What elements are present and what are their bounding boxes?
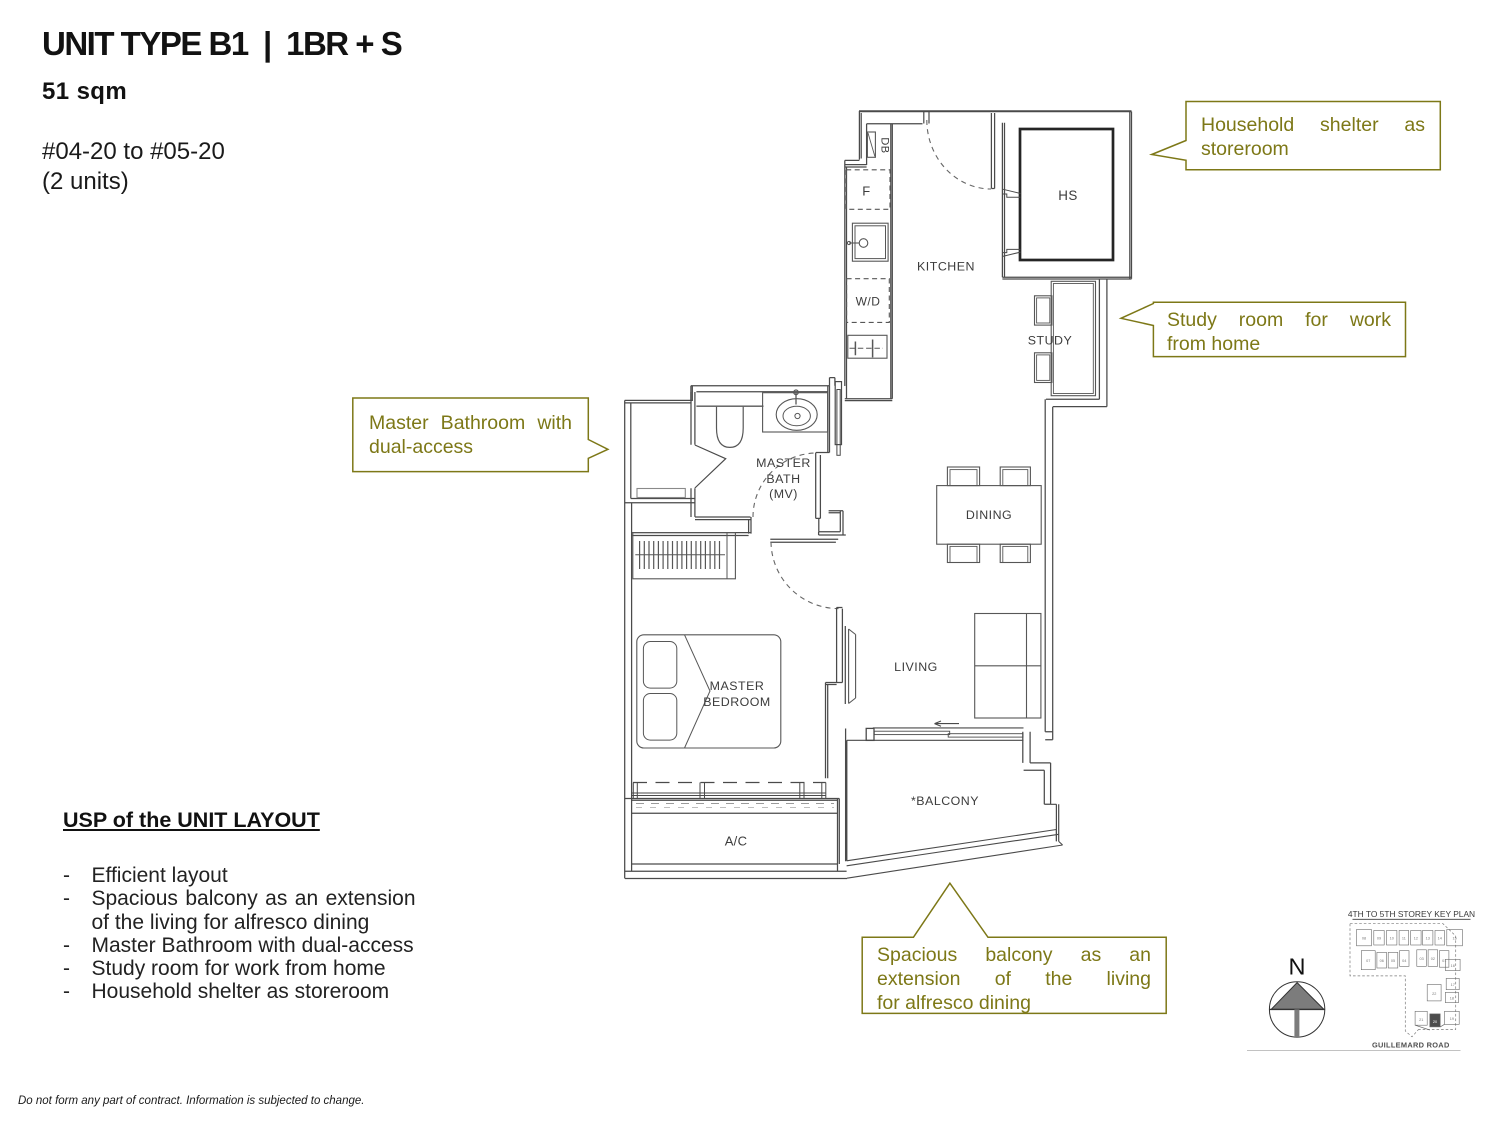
svg-text:04: 04	[1402, 959, 1406, 963]
svg-text:16: 16	[1451, 964, 1455, 968]
svg-text:LIVING: LIVING	[894, 660, 938, 674]
svg-text:06: 06	[1380, 959, 1384, 963]
svg-text:20: 20	[1433, 1020, 1437, 1024]
svg-text:MASTER: MASTER	[756, 456, 811, 470]
svg-text:14: 14	[1438, 937, 1442, 941]
svg-text:01: 01	[1442, 959, 1446, 963]
svg-text:N: N	[1289, 954, 1306, 980]
svg-text:A/C: A/C	[725, 834, 748, 849]
svg-text:21: 21	[1419, 1018, 1423, 1022]
svg-text:18: 18	[1450, 997, 1454, 1001]
svg-text:DINING: DINING	[966, 508, 1012, 522]
svg-text:09: 09	[1377, 937, 1381, 941]
svg-text:03: 03	[1419, 957, 1423, 961]
svg-text:4TH TO 5TH STOREY KEY PLAN: 4TH TO 5TH STOREY KEY PLAN	[1348, 909, 1475, 919]
svg-text:BEDROOM: BEDROOM	[703, 695, 771, 709]
svg-text:HS: HS	[1058, 188, 1078, 203]
svg-text:GUILLEMARD ROAD: GUILLEMARD ROAD	[1372, 1041, 1450, 1050]
svg-text:*BALCONY: *BALCONY	[911, 794, 979, 808]
svg-text:STUDY: STUDY	[1028, 334, 1073, 348]
svg-text:13: 13	[1426, 937, 1430, 941]
svg-text:02: 02	[1431, 957, 1435, 961]
svg-text:KITCHEN: KITCHEN	[917, 260, 975, 274]
svg-text:08: 08	[1362, 937, 1366, 941]
svg-text:12: 12	[1414, 937, 1418, 941]
svg-text:22: 22	[1432, 992, 1436, 996]
svg-text:(MV): (MV)	[769, 487, 798, 501]
svg-text:11: 11	[1402, 937, 1406, 941]
svg-text:05: 05	[1391, 959, 1395, 963]
svg-text:MASTER: MASTER	[710, 679, 765, 693]
svg-text:19: 19	[1450, 1017, 1454, 1021]
svg-text:10: 10	[1390, 937, 1394, 941]
svg-text:DB: DB	[879, 137, 891, 153]
svg-text:W/D: W/D	[856, 295, 881, 309]
svg-text:07: 07	[1366, 959, 1370, 963]
svg-text:15: 15	[1452, 937, 1456, 941]
svg-text:F: F	[862, 184, 870, 199]
svg-text:BATH: BATH	[766, 472, 800, 486]
svg-text:17: 17	[1451, 983, 1455, 987]
